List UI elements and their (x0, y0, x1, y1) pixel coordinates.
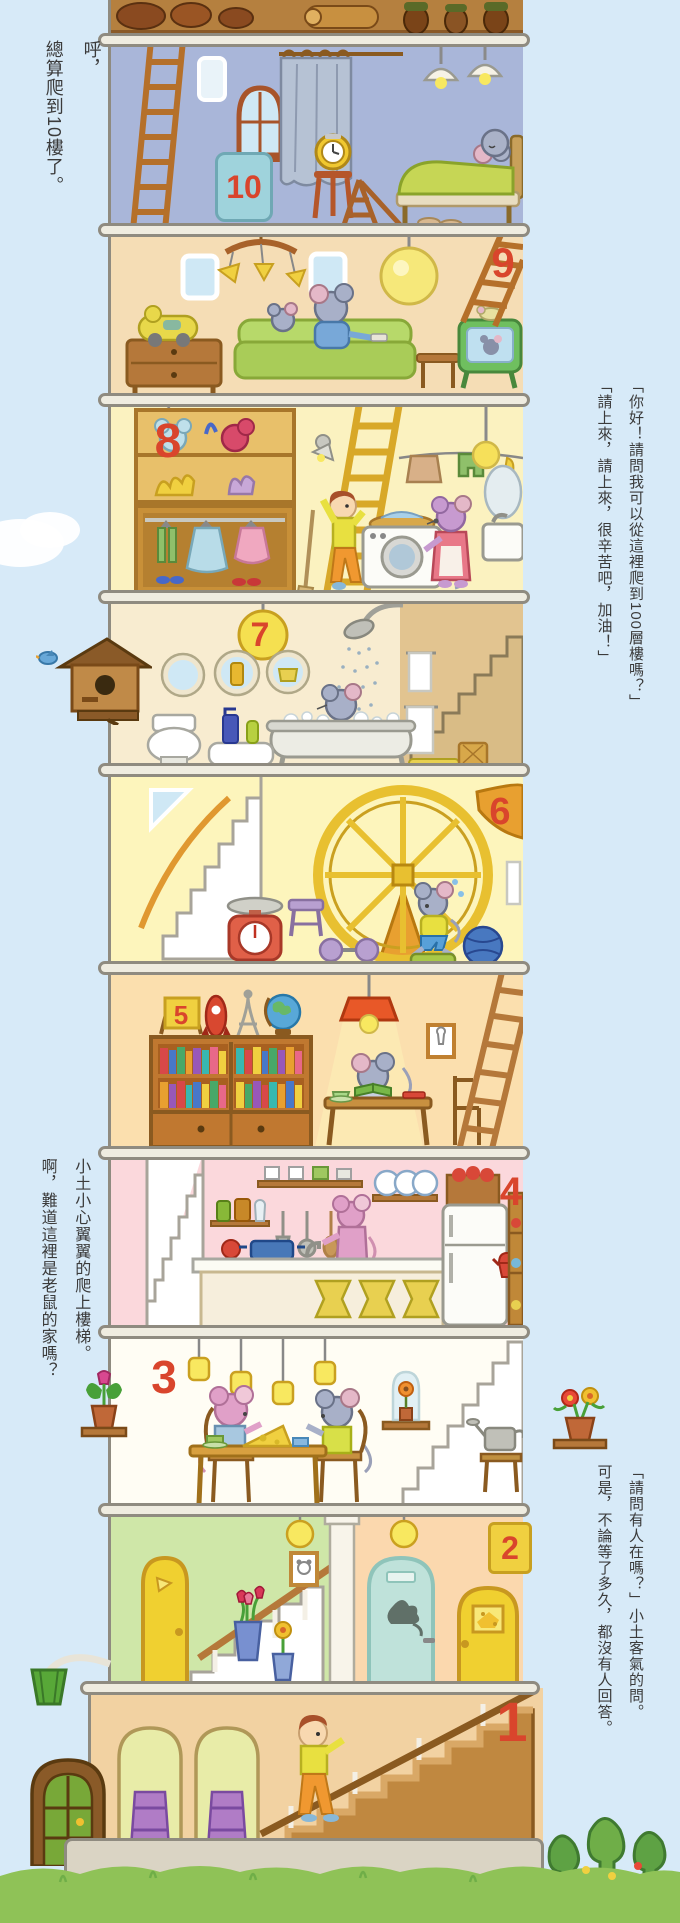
small-window (199, 58, 225, 100)
floor-1-number: 1 (492, 1694, 532, 1750)
floor-4-kitchen (108, 1153, 520, 1332)
narration-left-middle: 小土小心翼翼的爬上樓梯。 啊，難道這裡是老鼠的家嗎？ (30, 1158, 97, 1418)
floor-slab (80, 1681, 540, 1695)
floor-slab (98, 223, 530, 237)
narration-line: 呼， (72, 40, 110, 310)
narration-line: 「請問有人在嗎？」小土客氣的問。 (620, 1464, 652, 1764)
narration-line: 小土小心翼翼的爬上樓梯。 (64, 1158, 98, 1418)
floor-7-number: 7 (242, 618, 278, 652)
floor-slab (98, 1325, 530, 1339)
hamster-wheel-with-mouse (318, 790, 488, 962)
wardrobe-with-dresses (136, 506, 294, 594)
narration-line: 「你好！請問我可以從這裡爬到100層樓嗎？」 (620, 378, 652, 718)
narration-line: 啊，難道這裡是老鼠的家嗎？ (30, 1158, 64, 1418)
narration-right-lower: 「請問有人在嗎？」小土客氣的問。 可是，不論等了多久，都沒有人回答。 (588, 1464, 651, 1764)
picture-book-page: 10 (0, 0, 680, 1923)
porthole-windows (162, 651, 309, 696)
floor-slab (98, 1146, 530, 1160)
grass (0, 1852, 680, 1923)
mouse-picture-frame (291, 1553, 317, 1585)
barrel-alcove (196, 1728, 258, 1848)
floor-5-study (108, 968, 520, 1153)
birdhouse (52, 633, 152, 725)
floor-1-entrance (88, 1688, 540, 1862)
street-lamp (18, 1642, 113, 1710)
floor-slab (98, 1503, 530, 1517)
floor-2-number-plate: 2 (488, 1522, 532, 1574)
floor-9-living-room (108, 230, 520, 400)
floor-7-bathroom (108, 597, 520, 770)
teal-door (369, 1558, 435, 1688)
cloud (0, 498, 85, 573)
floor-slab (98, 961, 530, 975)
floor-10-number: 10 (226, 169, 262, 206)
plate-rack (373, 1171, 437, 1201)
floor-slab (98, 590, 530, 604)
yellow-canisters (316, 1281, 438, 1317)
laundry-basket (459, 743, 487, 765)
towel (507, 862, 520, 904)
kitchen-scale (228, 898, 282, 960)
flower-pot-shelf-right (552, 1382, 610, 1452)
floor-8-number: 8 (148, 418, 188, 466)
floor-3-number: 3 (146, 1354, 182, 1400)
floor-slab (98, 33, 530, 47)
barrel-alcove (119, 1728, 181, 1848)
yellow-door-right (459, 1588, 517, 1688)
narration-right-upper: 「你好！請問我可以從這裡爬到100層樓嗎？」 「請上來，請上來，很辛苦吧，加油！… (588, 378, 651, 718)
floor-6-exercise-room (108, 770, 520, 968)
bookcase (151, 1037, 311, 1147)
pillar (325, 1514, 359, 1688)
floor-slab (98, 393, 530, 407)
floor-slab (98, 763, 530, 777)
floor-9-number: 9 (488, 242, 518, 284)
picture-frame (428, 1025, 454, 1057)
floor-5-number: 5 (166, 1002, 196, 1028)
bluebird (36, 648, 60, 666)
window (183, 256, 217, 298)
jar-shelf (211, 1199, 269, 1226)
narration-line: 總算爬到10樓了。 (34, 40, 72, 310)
narration-line: 可是，不論等了多久，都沒有人回答。 (588, 1464, 620, 1764)
floor-2-number: 2 (501, 1530, 519, 1567)
floor-2-hallway (108, 1510, 520, 1688)
narration-line: 「請上來，請上來，很辛苦吧，加油！」 (588, 378, 620, 718)
floor-6-number: 6 (485, 793, 515, 831)
floor-10-bedroom (108, 40, 520, 230)
staircase (147, 1153, 203, 1332)
yellow-door-left (143, 1558, 187, 1688)
narration-top-left: 呼， 總算爬到10樓了。 (34, 40, 110, 310)
floor-10-number-plate: 10 (215, 152, 273, 222)
floor-4-number: 4 (496, 1172, 526, 1212)
exercise-ball (464, 927, 502, 965)
